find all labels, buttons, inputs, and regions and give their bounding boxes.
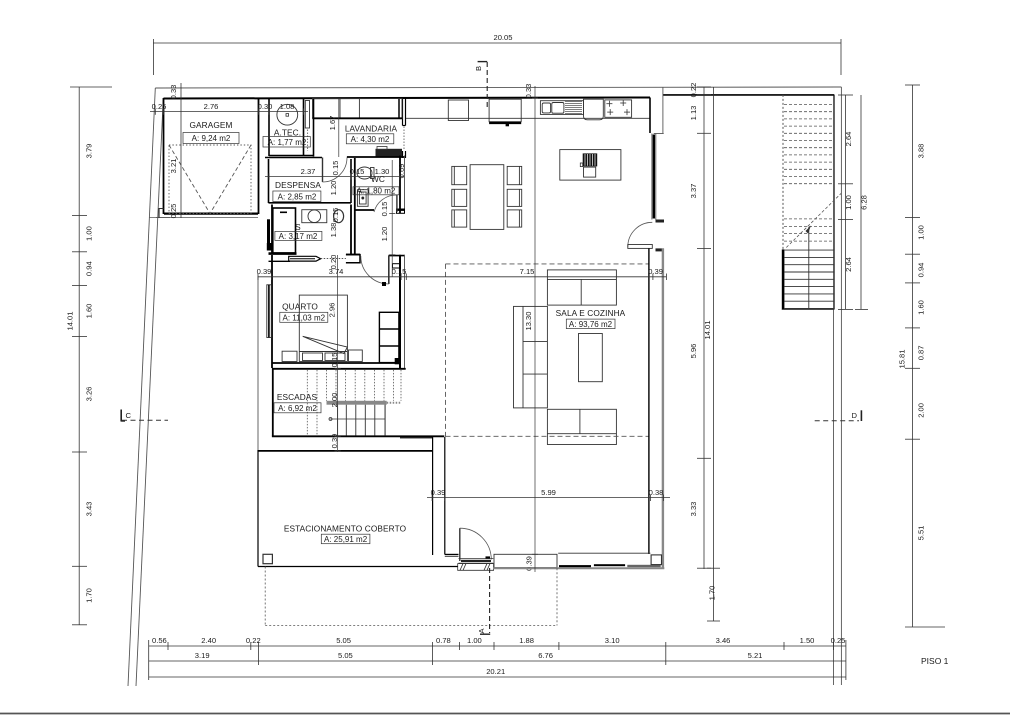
svg-text:1.70: 1.70 [85, 588, 94, 603]
svg-text:1.13: 1.13 [689, 106, 698, 121]
svg-text:2.64: 2.64 [844, 257, 853, 272]
svg-text:3.37: 3.37 [689, 184, 698, 199]
svg-text:1.00: 1.00 [467, 636, 482, 645]
svg-text:0.39: 0.39 [431, 488, 446, 497]
svg-text:3.33: 3.33 [689, 502, 698, 517]
svg-text:20.05: 20.05 [493, 33, 512, 42]
svg-text:0.30: 0.30 [258, 102, 273, 111]
svg-text:2.40: 2.40 [201, 636, 216, 645]
svg-text:A: 25,91 m2: A: 25,91 m2 [324, 535, 368, 544]
svg-text:2.64: 2.64 [844, 132, 853, 147]
svg-text:1.00: 1.00 [917, 225, 926, 240]
svg-text:0.33: 0.33 [169, 85, 178, 100]
svg-text:A: 4,30 m2: A: 4,30 m2 [351, 135, 390, 144]
svg-text:1.60: 1.60 [85, 304, 94, 319]
svg-text:0.15: 0.15 [392, 267, 407, 276]
svg-text:1.20: 1.20 [329, 181, 338, 196]
svg-text:0.15: 0.15 [350, 167, 365, 176]
svg-text:1.20: 1.20 [380, 227, 389, 242]
svg-text:A: 9,24 m2: A: 9,24 m2 [192, 134, 231, 143]
svg-text:5.99: 5.99 [541, 488, 556, 497]
svg-text:3.74: 3.74 [329, 267, 344, 276]
svg-text:6.28: 6.28 [860, 195, 869, 210]
svg-text:1.30: 1.30 [375, 167, 390, 176]
svg-text:20.21: 20.21 [486, 667, 505, 676]
svg-text:1.88: 1.88 [519, 636, 534, 645]
svg-text:A: 11,03 m2: A: 11,03 m2 [283, 314, 326, 323]
svg-text:0.22: 0.22 [246, 636, 261, 645]
svg-text:0.25: 0.25 [169, 204, 178, 219]
svg-text:0.15: 0.15 [331, 208, 340, 223]
svg-text:A: 6,92 m2: A: 6,92 m2 [278, 404, 317, 413]
svg-text:3.88: 3.88 [917, 144, 926, 159]
svg-text:LAVANDARIA: LAVANDARIA [345, 124, 398, 134]
svg-text:D: D [852, 411, 858, 420]
svg-text:B: B [474, 66, 483, 71]
svg-text:A: 2,85 m2: A: 2,85 m2 [278, 193, 317, 202]
svg-text:GARAGEM: GARAGEM [189, 120, 232, 130]
svg-text:6.76: 6.76 [538, 651, 553, 660]
svg-text:0.15: 0.15 [380, 202, 389, 217]
svg-text:2.00: 2.00 [917, 403, 926, 418]
svg-text:1.67: 1.67 [328, 116, 337, 131]
svg-text:0.33: 0.33 [524, 84, 533, 99]
svg-text:0.39: 0.39 [648, 267, 663, 276]
svg-text:0.94: 0.94 [85, 261, 94, 276]
svg-text:S: S [295, 222, 301, 232]
svg-text:0.56: 0.56 [152, 636, 167, 645]
svg-text:5.51: 5.51 [917, 526, 926, 541]
svg-text:0.78: 0.78 [436, 636, 451, 645]
svg-text:1.60: 1.60 [917, 300, 926, 315]
svg-text:1.70: 1.70 [708, 586, 717, 601]
svg-text:5.21: 5.21 [748, 651, 763, 660]
svg-text:A: 1,77 m2: A: 1,77 m2 [268, 138, 307, 147]
svg-text:ESTACIONAMENTO COBERTO: ESTACIONAMENTO COBERTO [284, 524, 407, 534]
svg-text:3.46: 3.46 [716, 636, 731, 645]
svg-text:14.01: 14.01 [66, 311, 75, 330]
svg-text:C: C [126, 411, 132, 420]
svg-text:5.05: 5.05 [336, 636, 351, 645]
svg-text:3.19: 3.19 [195, 651, 210, 660]
svg-text:QUARTO: QUARTO [282, 302, 318, 312]
svg-text:0.15: 0.15 [331, 161, 340, 176]
svg-text:5.05: 5.05 [338, 651, 353, 660]
svg-text:13.30: 13.30 [524, 311, 533, 330]
svg-text:1.50: 1.50 [800, 636, 815, 645]
svg-text:1.08: 1.08 [280, 102, 295, 111]
svg-text:0.39: 0.39 [257, 267, 272, 276]
svg-text:3.43: 3.43 [85, 502, 94, 517]
svg-text:3.10: 3.10 [605, 636, 620, 645]
svg-text:14.01: 14.01 [703, 320, 712, 339]
svg-text:ESCADAS: ESCADAS [277, 392, 318, 402]
svg-text:3.21: 3.21 [169, 159, 178, 174]
svg-text:3.79: 3.79 [85, 144, 94, 159]
svg-text:5.96: 5.96 [689, 344, 698, 359]
svg-text:DESPENSA: DESPENSA [275, 180, 321, 190]
svg-text:A: 93,76 m2: A: 93,76 m2 [569, 320, 613, 329]
svg-text:15.81: 15.81 [898, 349, 907, 368]
svg-text:A.TEC.: A.TEC. [274, 127, 301, 137]
svg-text:2.37: 2.37 [301, 167, 316, 176]
svg-text:0.94: 0.94 [917, 263, 926, 278]
svg-text:0.22: 0.22 [689, 83, 698, 98]
svg-text:1.00: 1.00 [85, 226, 94, 241]
svg-text:7.15: 7.15 [520, 267, 535, 276]
svg-text:2.76: 2.76 [204, 102, 219, 111]
svg-text:1.38: 1.38 [329, 223, 338, 238]
svg-text:SALA E COZINHA: SALA E COZINHA [556, 308, 626, 318]
svg-text:0.25: 0.25 [152, 102, 167, 111]
svg-text:3.26: 3.26 [85, 387, 94, 402]
svg-text:1.00: 1.00 [844, 195, 853, 210]
svg-text:A: 1,80 m2: A: 1,80 m2 [357, 187, 396, 196]
svg-text:2.96: 2.96 [328, 303, 337, 318]
svg-text:0.87: 0.87 [917, 346, 926, 361]
svg-text:A: 3,17 m2: A: 3,17 m2 [279, 232, 318, 241]
svg-text:0.25: 0.25 [831, 636, 846, 645]
svg-text:PISO 1: PISO 1 [921, 656, 949, 666]
